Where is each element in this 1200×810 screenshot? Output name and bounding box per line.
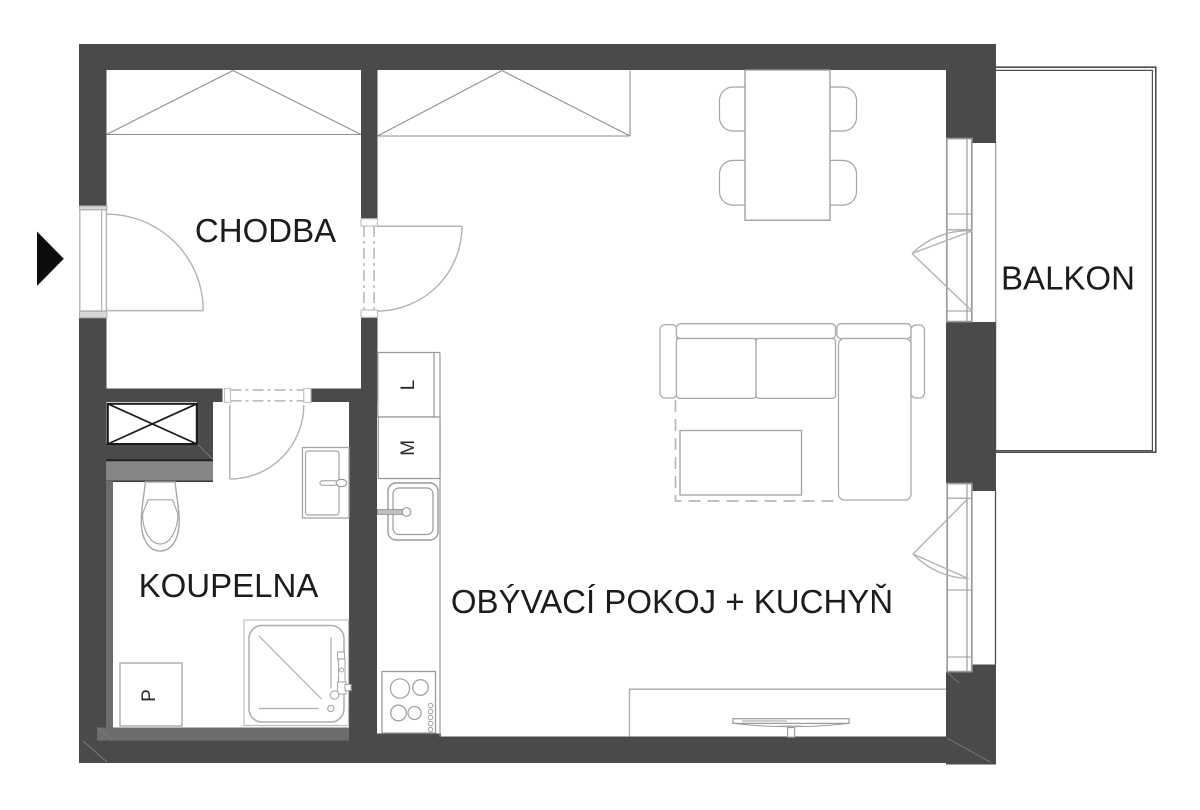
svg-text:OBÝVACÍ POKOJ + KUCHYŇ: OBÝVACÍ POKOJ + KUCHYŇ [451, 583, 893, 620]
svg-text:L: L [398, 380, 419, 391]
svg-text:P: P [139, 689, 160, 702]
svg-text:CHODBA: CHODBA [195, 212, 336, 249]
svg-text:BALKON: BALKON [1001, 260, 1135, 297]
svg-text:KOUPELNA: KOUPELNA [139, 567, 319, 604]
svg-text:M: M [398, 440, 419, 456]
